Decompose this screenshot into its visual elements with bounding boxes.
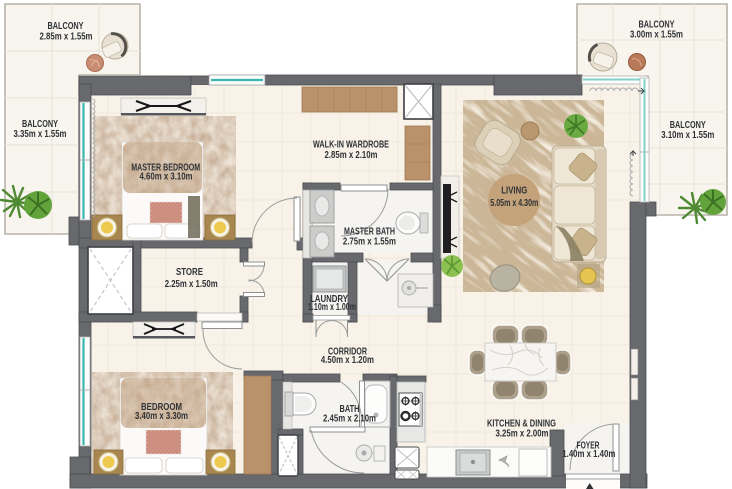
svg-text:3.35m x 1.55m: 3.35m x 1.55m bbox=[14, 129, 67, 140]
svg-text:3.00m x 1.55m: 3.00m x 1.55m bbox=[630, 30, 683, 41]
svg-text:5.05m x 4.30m: 5.05m x 4.30m bbox=[490, 198, 538, 209]
svg-text:1.40m x 1.40m: 1.40m x 1.40m bbox=[562, 449, 615, 460]
svg-text:2.85m x 1.55m: 2.85m x 1.55m bbox=[40, 31, 93, 42]
svg-text:4.50m x 1.20m: 4.50m x 1.20m bbox=[321, 355, 374, 366]
svg-text:3.25m x 2.00m: 3.25m x 2.00m bbox=[496, 428, 549, 439]
svg-text:2.25m x 1.50m: 2.25m x 1.50m bbox=[165, 279, 218, 290]
svg-text:3.10m x 1.55m: 3.10m x 1.55m bbox=[661, 130, 714, 141]
svg-text:1.10m x 1.00m: 1.10m x 1.00m bbox=[308, 302, 356, 313]
svg-text:WALK-IN WARDROBE: WALK-IN WARDROBE bbox=[313, 139, 389, 150]
svg-text:LIVING: LIVING bbox=[501, 185, 527, 196]
svg-text:2.75m x 1.55m: 2.75m x 1.55m bbox=[343, 236, 396, 247]
svg-text:2.45m x 2.10m: 2.45m x 2.10m bbox=[323, 414, 376, 425]
svg-text:2.85m x 2.10m: 2.85m x 2.10m bbox=[325, 150, 378, 161]
svg-text:STORE: STORE bbox=[176, 267, 203, 278]
svg-text:4.60m x 3.10m: 4.60m x 3.10m bbox=[140, 172, 193, 183]
svg-text:3.40m x 3.30m: 3.40m x 3.30m bbox=[135, 411, 188, 422]
